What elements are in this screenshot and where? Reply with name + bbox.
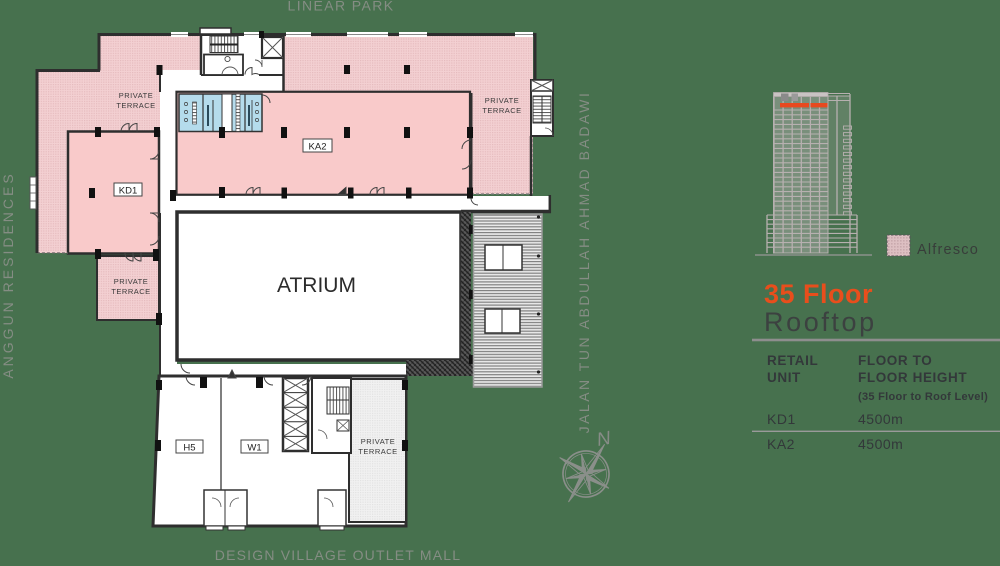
svg-text:ATRIUM: ATRIUM bbox=[277, 274, 356, 297]
svg-text:RETAIL: RETAIL bbox=[767, 353, 818, 368]
svg-text:W1: W1 bbox=[247, 443, 261, 454]
svg-text:FLOOR HEIGHT: FLOOR HEIGHT bbox=[858, 370, 967, 385]
svg-text:DESIGN VILLAGE OUTLET MALL: DESIGN VILLAGE OUTLET MALL bbox=[215, 547, 461, 561]
svg-text:KA2: KA2 bbox=[309, 142, 327, 153]
svg-text:UNIT: UNIT bbox=[767, 370, 801, 385]
svg-text:TERRACE: TERRACE bbox=[116, 101, 155, 110]
svg-text:Rooftop: Rooftop bbox=[764, 307, 877, 337]
svg-text:FLOOR TO: FLOOR TO bbox=[858, 353, 932, 368]
svg-text:H5: H5 bbox=[183, 443, 195, 454]
svg-text:(35 Floor to Roof Level): (35 Floor to Roof Level) bbox=[858, 391, 988, 403]
svg-text:PRIVATE: PRIVATE bbox=[361, 437, 395, 446]
svg-text:KD1: KD1 bbox=[767, 411, 796, 427]
svg-text:Alfresco: Alfresco bbox=[917, 242, 979, 258]
svg-text:TERRACE: TERRACE bbox=[111, 287, 150, 296]
svg-text:35 Floor: 35 Floor bbox=[764, 279, 873, 309]
svg-text:KA2: KA2 bbox=[767, 436, 795, 452]
svg-text:TERRACE: TERRACE bbox=[482, 106, 521, 115]
svg-text:PRIVATE: PRIVATE bbox=[485, 96, 519, 105]
svg-text:PRIVATE: PRIVATE bbox=[114, 277, 148, 286]
svg-text:TERRACE: TERRACE bbox=[358, 447, 397, 456]
svg-text:LINEAR PARK: LINEAR PARK bbox=[288, 0, 395, 14]
svg-text:ANGGUN RESIDENCES: ANGGUN RESIDENCES bbox=[0, 171, 16, 378]
svg-text:JALAN TUN ABDULLAH AHMAD BADAW: JALAN TUN ABDULLAH AHMAD BADAWI bbox=[576, 91, 592, 434]
svg-text:4500m: 4500m bbox=[858, 436, 903, 452]
svg-text:4500m: 4500m bbox=[858, 411, 903, 427]
svg-text:PRIVATE: PRIVATE bbox=[119, 91, 153, 100]
svg-text:KD1: KD1 bbox=[119, 186, 137, 197]
